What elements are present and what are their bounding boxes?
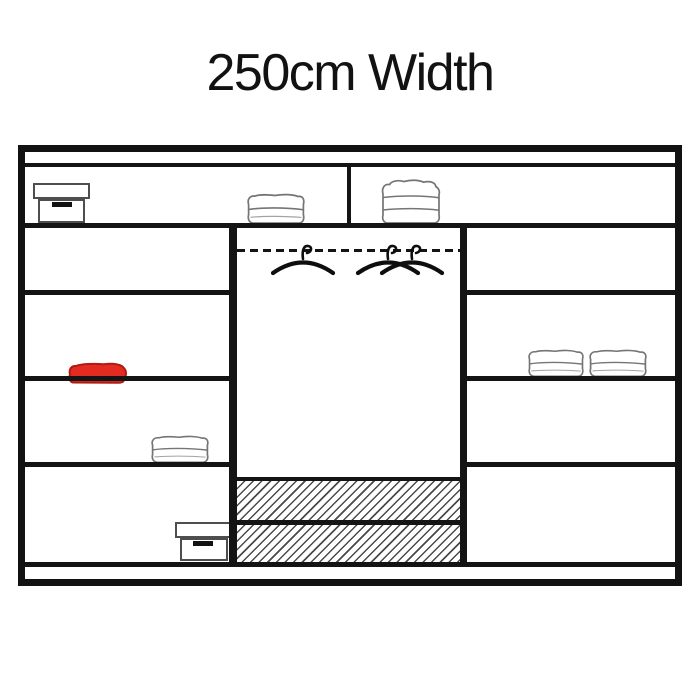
folded-towel-right-2 [588,349,648,377]
right-shelf-3 [460,462,675,467]
box-handle [193,541,213,546]
box-handle [52,202,72,207]
clothes-hangers-icon [237,240,460,278]
right-shelf-1 [460,290,675,295]
top-section-divider [347,163,351,228]
left-shelf-1 [25,290,237,295]
right-shelf-2 [460,376,675,381]
folded-towel-left-lower [150,435,210,463]
folded-towel-right-1 [527,349,585,377]
drawer-2 [237,525,460,562]
left-shelf-2 [25,376,237,381]
wardrobe-interior [25,152,675,579]
floor-line [25,562,675,567]
left-middle-divider [229,223,237,567]
middle-right-divider [460,223,467,567]
drawer-divider-line [237,520,460,525]
drawer-1 [237,481,460,520]
drawer-top-line [237,477,460,481]
folded-towel-top-center [246,193,306,224]
folded-towel-top-right [380,179,442,224]
page-title: 250cm Width [0,43,700,103]
box-lid [175,522,231,538]
wardrobe-diagram [18,145,682,586]
left-shelf-3 [25,462,237,467]
box-lid [33,183,90,199]
